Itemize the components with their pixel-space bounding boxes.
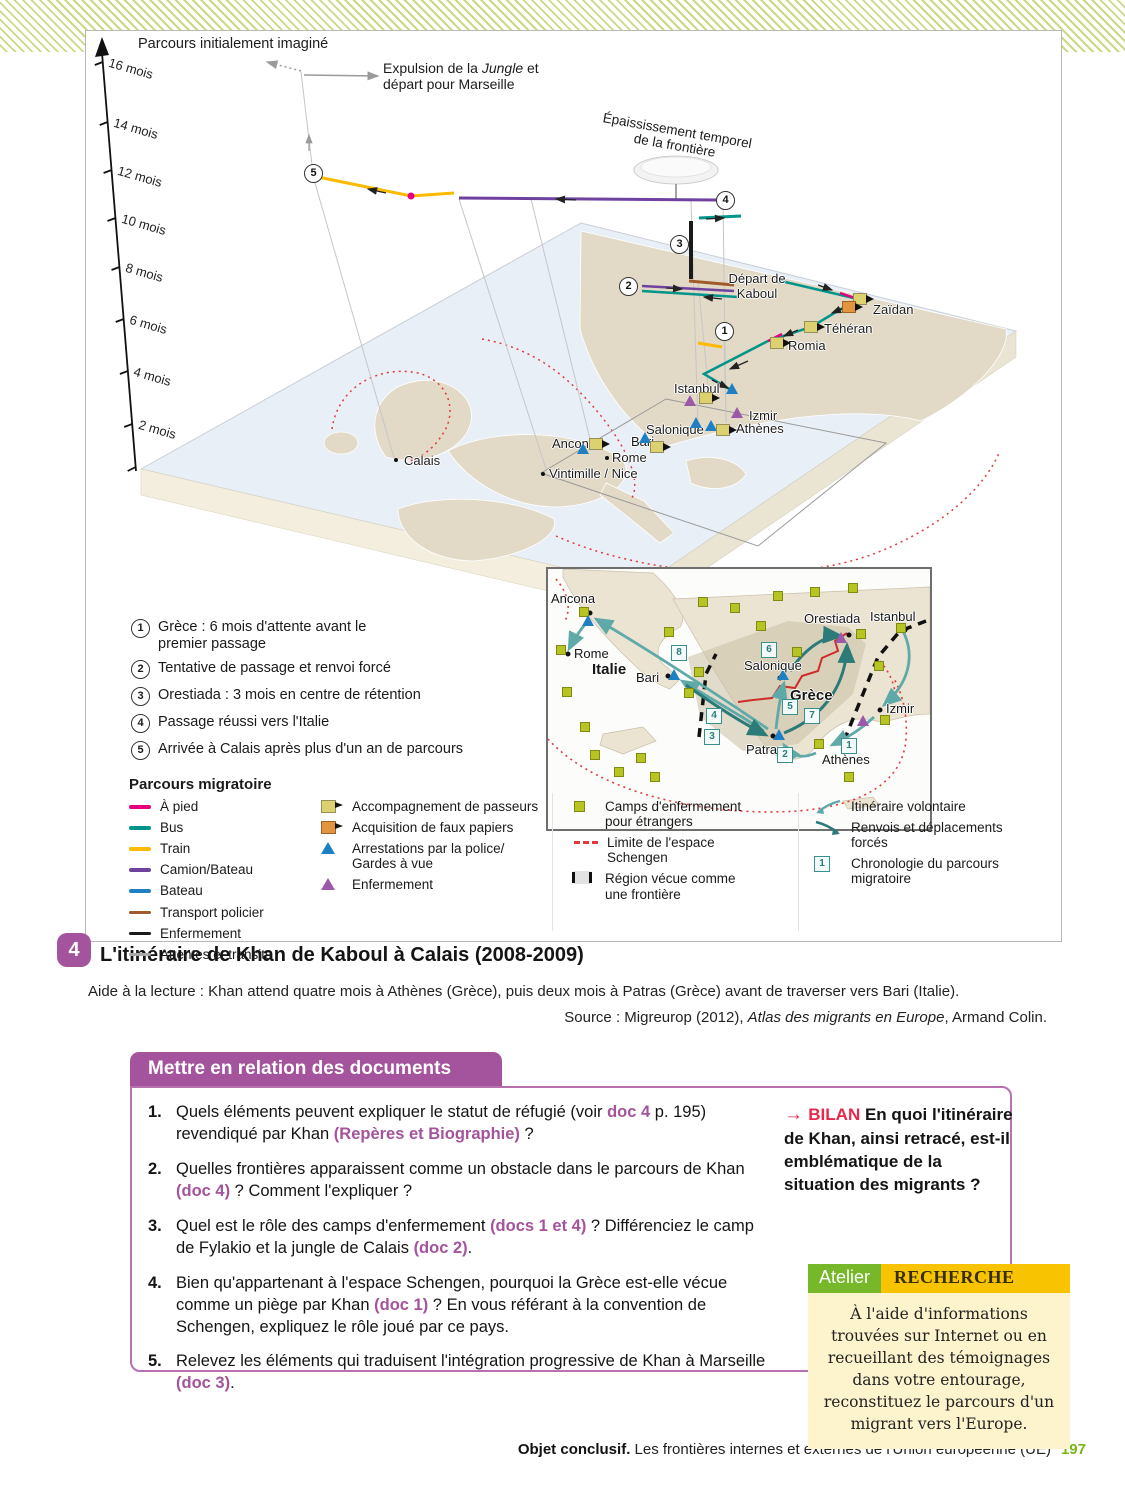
legend-label: Arrestations par la police/ Gardes à vue	[352, 841, 522, 871]
label-athenes: Athènes	[736, 422, 784, 437]
legend-fake-papers: Acquisition de faux papiers	[321, 820, 541, 835]
confinement-icon-izmir-inset	[857, 715, 869, 726]
rome-dot	[605, 456, 609, 460]
doc-reading-help: Aide à la lecture : Khan attend quatre m…	[88, 983, 1048, 1000]
legend-separator	[552, 793, 553, 931]
inset-label-rome: Rome	[574, 646, 609, 661]
step-2-number: 2	[131, 660, 150, 679]
legend-label: Attentes et transits	[160, 947, 272, 962]
confinement-icon-istanbul	[684, 395, 696, 406]
legend-route-walk: À pied	[129, 799, 319, 814]
legend-routes: À pied Bus Train Camion/Bateau Bateau Tr…	[129, 799, 319, 968]
camp-icon	[664, 627, 674, 637]
legend-areas: Camps d'enfermement pour étrangers Limit…	[574, 799, 774, 908]
chronology-box-8: 8	[671, 645, 687, 661]
doc-number-badge: 4	[57, 933, 91, 967]
question-number: 1.	[148, 1102, 170, 1146]
arrest-icon-bari-inset	[668, 669, 680, 680]
legend-label: À pied	[160, 799, 198, 814]
bilan-label: BILAN	[808, 1105, 860, 1124]
inset-label-italie: Italie	[592, 661, 626, 678]
chronology-box-4: 4	[706, 708, 722, 724]
legend-label: Train	[160, 841, 190, 856]
question-number: 2.	[148, 1159, 170, 1203]
arrest-icon-patras	[773, 729, 785, 740]
inset-label-athenes: Athènes	[822, 752, 870, 767]
activity-banner: Mettre en relation des documents	[130, 1052, 502, 1086]
question-1: 1. Quels éléments peuvent expliquer le s…	[148, 1102, 766, 1146]
reading-help-label: Aide à la lecture :	[88, 983, 204, 1000]
camp-square-icon	[574, 801, 585, 812]
bus-line-icon	[129, 826, 151, 830]
truck-line-icon	[129, 868, 151, 872]
chronology-box-icon: 1	[814, 856, 830, 872]
legend-route-boat: Bateau	[129, 883, 319, 898]
step-4-text: Passage réussi vers l'Italie	[158, 714, 329, 731]
legend-route-confinement: Enfermement	[129, 926, 319, 941]
arrest-icon-route-end	[726, 383, 738, 394]
legend-events: Accompagnement de passeurs Acquisition d…	[321, 799, 541, 899]
inset-label-bari: Bari	[636, 670, 659, 685]
label-rome: Rome	[612, 451, 647, 466]
chronology-box-2: 2	[777, 747, 793, 763]
source-title: Atlas des migrants en Europe	[748, 1009, 945, 1026]
camp-icon	[698, 597, 708, 607]
legend-schengen: Limite de l'espace Schengen	[574, 835, 774, 865]
camp-icon	[792, 647, 802, 657]
camp-icon	[848, 583, 858, 593]
smuggler-icon-teheran	[804, 321, 818, 333]
schengen-dashed-icon	[574, 841, 598, 844]
camp-icon	[856, 629, 866, 639]
legend-arrests: Arrestations par la police/ Gardes à vue	[321, 841, 526, 871]
legend-label: Bateau	[160, 883, 203, 898]
step-4: 4Passage réussi vers l'Italie	[131, 714, 471, 733]
voluntary-arrow-icon	[814, 799, 842, 815]
question-3: 3. Quel est le rôle des camps d'enfermem…	[148, 1216, 766, 1260]
time-axis	[95, 37, 136, 471]
question-5: 5. Relevez les éléments qui traduisent l…	[148, 1351, 766, 1395]
step-2-text: Tentative de passage et renvoi forcé	[158, 660, 391, 677]
annotation-expulsion: Expulsion de la Jungle et départ pour Ma…	[383, 61, 539, 92]
legend-route-train: Train	[129, 841, 319, 856]
thickening-disc	[634, 156, 718, 201]
question-list: 1. Quels éléments peuvent expliquer le s…	[148, 1102, 766, 1408]
step-3-number: 3	[131, 687, 150, 706]
legend-voluntary: Itinéraire volontaire	[814, 799, 1034, 814]
legend-label: Limite de l'espace Schengen	[607, 835, 774, 865]
camp-icon	[896, 623, 906, 633]
camp-icon	[650, 772, 660, 782]
legend-route-truck: Camion/Bateau	[129, 862, 319, 877]
bilan-block: → BILAN En quoi l'itinéraire de Khan, ai…	[784, 1102, 1016, 1196]
footer-section: Objet conclusif.	[518, 1441, 631, 1458]
confinement-icon-orestiada	[835, 632, 847, 643]
step-4-number: 4	[131, 714, 150, 733]
inset-label-istanbul: Istanbul	[870, 609, 916, 624]
camp-icon	[580, 722, 590, 732]
step-1-text: Grèce : 6 mois d'attente avant le premie…	[158, 619, 368, 652]
legend-title: Parcours migratoire	[129, 776, 272, 793]
smuggler-icon-athenes	[716, 424, 730, 436]
map-slab	[141, 223, 1016, 613]
legend-route-waits: Attentes et transits	[129, 947, 319, 962]
legend-camps: Camps d'enfermement pour étrangers	[574, 799, 759, 829]
step-list: 1Grèce : 6 mois d'attente avant le premi…	[131, 619, 471, 768]
route-marker-2: 2	[619, 277, 638, 296]
chronology-box-1: 1	[841, 738, 857, 754]
chronology-box-6: 6	[761, 642, 777, 658]
chronology-box-7: 7	[804, 708, 820, 724]
bilan-arrow-icon: →	[784, 1104, 808, 1125]
legend-label: Bus	[160, 820, 183, 835]
step-5-number: 5	[131, 741, 150, 760]
step-1-number: 1	[131, 619, 150, 638]
camp-icon	[614, 767, 624, 777]
smuggler-icon-istanbul	[699, 392, 713, 404]
chronology-box-5: 5	[782, 699, 798, 715]
boat-line-icon	[129, 889, 151, 893]
confinement-line-icon	[129, 932, 151, 936]
label-romia: Romia	[788, 339, 826, 354]
smuggler-square-icon	[321, 800, 336, 813]
camp-icon	[844, 772, 854, 782]
arrest-icon-ancona	[582, 615, 594, 626]
inset-map: Ancona Rome Italie Bari Orestiada Istanb…	[546, 567, 932, 831]
fake-papers-square-icon	[321, 821, 336, 834]
inset-label-izmir: Izmir	[886, 701, 914, 716]
arrest-triangle-icon	[321, 842, 335, 854]
legend-forced: Renvois et déplacements forcés	[814, 820, 1019, 850]
label-vintimille: Vintimille / Nice	[549, 467, 638, 482]
confinement-triangle-icon	[321, 878, 335, 890]
camp-icon	[590, 750, 600, 760]
step-2: 2Tentative de passage et renvoi forcé	[131, 660, 471, 679]
question-text: Quel est le rôle des camps d'enfermement…	[176, 1216, 766, 1260]
camp-icon	[814, 739, 824, 749]
camp-icon	[756, 621, 766, 631]
legend-label: Enfermement	[160, 926, 241, 941]
question-2: 2. Quelles frontières apparaissent comme…	[148, 1159, 766, 1203]
arrest-icon-ancone	[577, 443, 589, 454]
camp-icon	[636, 753, 646, 763]
legend-movements: Itinéraire volontaire Renvois et déplace…	[814, 799, 1034, 893]
step-5-text: Arrivée à Calais après plus d'un an de p…	[158, 741, 463, 758]
question-number: 4.	[148, 1273, 170, 1339]
atelier-category: RECHERCHE	[881, 1264, 1070, 1293]
legend-smugglers: Accompagnement de passeurs	[321, 799, 541, 814]
legend-label: Acquisition de faux papiers	[352, 820, 513, 835]
vintimille-dot	[541, 472, 545, 476]
label-teheran: Téhéran	[824, 322, 872, 337]
atelier-tag: Atelier	[808, 1264, 881, 1293]
legend-label: Itinéraire volontaire	[851, 799, 966, 814]
route-marker-5: 5	[304, 164, 323, 183]
border-region-icon	[574, 871, 590, 884]
waits-line-icon	[129, 953, 151, 957]
label-kaboul: Départ deKaboul	[726, 272, 788, 301]
smuggler-icon-ancone	[589, 438, 603, 450]
police-line-icon	[129, 911, 151, 915]
camp-icon	[880, 715, 890, 725]
doc-source: Source : Migreurop (2012), Atlas des mig…	[560, 1009, 1047, 1026]
atelier-header: Atelier RECHERCHE	[808, 1264, 1070, 1293]
question-text: Quels éléments peuvent expliquer le stat…	[176, 1102, 766, 1146]
step-3-text: Orestiada : 3 mois en centre de rétentio…	[158, 687, 421, 704]
reading-help-text: Khan attend quatre mois à Athènes (Grèce…	[204, 983, 959, 1000]
inset-label-salonique: Salonique	[744, 658, 802, 673]
source-prefix: Source : Migreurop (2012),	[564, 1009, 747, 1026]
camp-icon	[562, 687, 572, 697]
fake-papers-icon-zaidan	[842, 301, 856, 313]
confinement-icon-izmir	[731, 407, 743, 418]
legend-label: Camion/Bateau	[160, 862, 253, 877]
atelier-box: Atelier RECHERCHE À l'aide d'information…	[808, 1264, 1070, 1449]
camp-icon	[556, 645, 566, 655]
camp-icon	[684, 688, 694, 698]
legend-label: Camps d'enfermement pour étrangers	[605, 799, 755, 829]
smuggler-icon-bari	[650, 441, 664, 453]
atelier-text: À l'aide d'informations trouvées sur Int…	[808, 1293, 1070, 1449]
camp-icon	[810, 587, 820, 597]
inset-label-ancona: Ancona	[551, 591, 595, 606]
legend-label: Renvois et déplacements forcés	[851, 820, 1019, 850]
map-figure: 16 mois 14 mois 12 mois 10 mois 8 mois 6…	[85, 30, 1062, 942]
train-line-icon	[129, 847, 151, 851]
walk-line-icon	[129, 805, 151, 809]
legend-confinement-event: Enfermement	[321, 877, 541, 892]
inset-label-orestiada: Orestiada	[804, 611, 860, 626]
question-number: 3.	[148, 1216, 170, 1260]
label-calais: Calais	[404, 454, 440, 469]
legend-border-region: Région vécue comme une frontière	[574, 871, 759, 901]
arrest-icon-salonique	[690, 417, 702, 428]
camp-icon	[730, 603, 740, 613]
annotation-arrows	[267, 62, 378, 151]
forced-arrow-icon	[814, 820, 842, 836]
legend-route-police: Transport policier	[129, 905, 319, 920]
source-suffix: , Armand Colin.	[944, 1009, 1047, 1026]
question-text: Relevez les éléments qui traduisent l'in…	[176, 1351, 766, 1395]
annotation-initial-path: Parcours initialement imaginé	[138, 36, 328, 52]
route-marker-1: 1	[715, 322, 734, 341]
legend-label: Transport policier	[160, 905, 264, 920]
question-4: 4. Bien qu'appartenant à l'espace Scheng…	[148, 1273, 766, 1339]
route-marker-3: 3	[670, 235, 689, 254]
legend-separator	[798, 793, 799, 931]
step-3: 3Orestiada : 3 mois en centre de rétenti…	[131, 687, 471, 706]
legend-label: Accompagnement de passeurs	[352, 799, 538, 814]
legend-chronology: 1 Chronologie du parcours migratoire	[814, 856, 1019, 886]
chronology-box-3: 3	[704, 729, 720, 745]
label-zaidan: Zaïdan	[873, 303, 913, 318]
legend-label: Région vécue comme une frontière	[605, 871, 755, 901]
question-text: Quelles frontières apparaissent comme un…	[176, 1159, 766, 1203]
question-number: 5.	[148, 1351, 170, 1395]
textbook-page: 16 mois 14 mois 12 mois 10 mois 8 mois 6…	[0, 0, 1125, 1500]
camp-icon	[773, 591, 783, 601]
smuggler-icon-romia	[770, 337, 784, 349]
legend-label: Enfermement	[352, 877, 433, 892]
camp-icon	[874, 661, 884, 671]
legend-route-bus: Bus	[129, 820, 319, 835]
route-marker-4: 4	[716, 191, 735, 210]
step-1: 1Grèce : 6 mois d'attente avant le premi…	[131, 619, 471, 652]
camp-icon	[694, 667, 704, 677]
calais-dot	[394, 458, 398, 462]
question-text: Bien qu'appartenant à l'espace Schengen,…	[176, 1273, 766, 1339]
step-5: 5Arrivée à Calais après plus d'un an de …	[131, 741, 471, 760]
legend-label: Chronologie du parcours migratoire	[851, 856, 1019, 886]
